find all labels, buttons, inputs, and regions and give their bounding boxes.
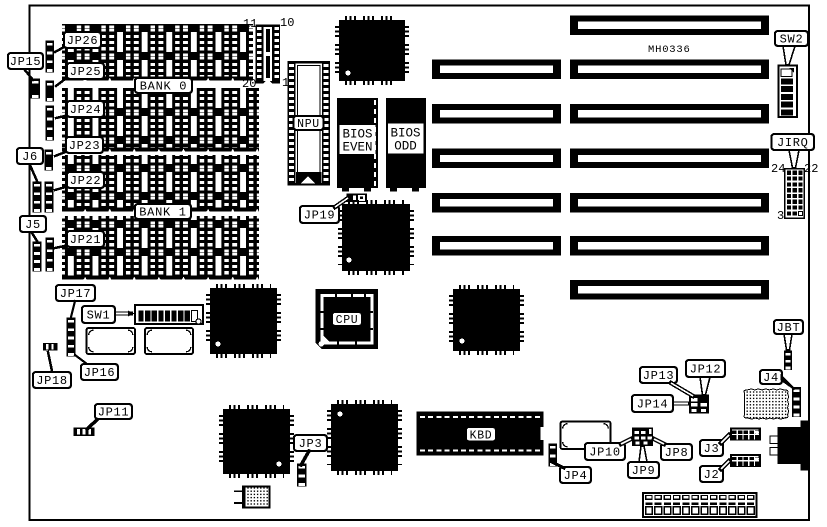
svg-text:BIOS: BIOS: [342, 128, 372, 142]
svg-text:20: 20: [242, 77, 256, 91]
svg-text:JP10: JP10: [589, 446, 621, 460]
svg-text:JP21: JP21: [70, 233, 102, 247]
svg-text:11: 11: [243, 17, 257, 31]
svg-text:JP4: JP4: [564, 469, 588, 483]
svg-text:JP18: JP18: [36, 374, 68, 388]
svg-text:SW2: SW2: [780, 33, 804, 47]
svg-text:JP9: JP9: [632, 464, 656, 478]
svg-text:CPU: CPU: [336, 314, 359, 327]
svg-text:10: 10: [280, 16, 294, 30]
svg-text:KBD: KBD: [470, 429, 493, 442]
svg-text:JP3: JP3: [299, 437, 323, 451]
svg-text:JIRQ: JIRQ: [777, 136, 809, 150]
svg-text:JP14: JP14: [637, 398, 669, 412]
svg-text:J2: J2: [704, 468, 720, 482]
svg-text:BANK 1: BANK 1: [139, 206, 186, 220]
svg-text:MH0336: MH0336: [648, 44, 691, 56]
svg-text:22: 22: [804, 162, 818, 176]
svg-text:JP16: JP16: [84, 366, 116, 380]
svg-text:BIOS: BIOS: [390, 127, 420, 141]
svg-text:SW1: SW1: [87, 309, 111, 323]
svg-text:JP11: JP11: [98, 406, 130, 420]
svg-text:NPU: NPU: [297, 118, 320, 131]
svg-text:EVEN: EVEN: [342, 141, 372, 155]
svg-text:ODD: ODD: [394, 140, 417, 154]
svg-text:JP22: JP22: [70, 174, 102, 188]
svg-text:JP26: JP26: [67, 34, 99, 48]
svg-text:JP23: JP23: [69, 139, 101, 153]
svg-text:JP25: JP25: [70, 65, 102, 79]
svg-text:J4: J4: [763, 371, 779, 385]
svg-text:JP12: JP12: [690, 363, 722, 377]
svg-text:24: 24: [771, 162, 785, 176]
svg-text:J5: J5: [25, 218, 41, 232]
svg-text:JP24: JP24: [70, 103, 102, 117]
svg-text:JP19: JP19: [304, 209, 336, 223]
svg-text:JP17: JP17: [60, 287, 92, 301]
svg-text:J3: J3: [704, 442, 720, 456]
svg-text:3: 3: [777, 209, 784, 223]
svg-text:JBT: JBT: [777, 321, 801, 335]
svg-text:JP15: JP15: [10, 55, 42, 69]
svg-text:JP13: JP13: [643, 369, 675, 383]
svg-text:BANK 0: BANK 0: [140, 80, 187, 94]
svg-text:J6: J6: [22, 150, 38, 164]
svg-text:JP8: JP8: [665, 446, 689, 460]
